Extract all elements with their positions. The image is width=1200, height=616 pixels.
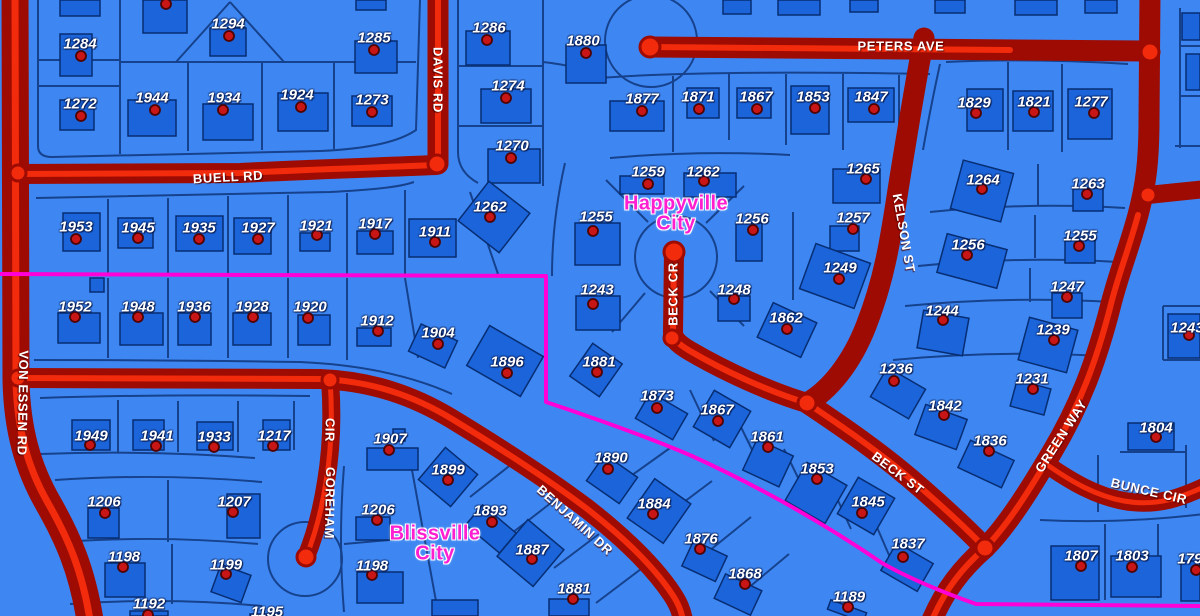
address-dot — [506, 153, 516, 163]
building — [1085, 0, 1117, 13]
address-dot — [433, 339, 443, 349]
address-dot — [367, 570, 377, 580]
address-dot — [373, 326, 383, 336]
building — [1186, 54, 1200, 90]
address-dot — [143, 610, 153, 616]
address-dot — [848, 224, 858, 234]
address-dot — [133, 312, 143, 322]
building — [234, 218, 271, 254]
address-dot — [637, 106, 647, 116]
address-dot — [372, 515, 382, 525]
building — [393, 429, 405, 441]
address-dot — [1074, 241, 1084, 251]
address-dot — [443, 475, 453, 485]
address-dot — [76, 111, 86, 121]
building — [60, 0, 100, 16]
address-dot — [984, 446, 994, 456]
map-canvas[interactable]: 1284127212941944193419241285127312861274… — [0, 0, 1200, 616]
address-dot — [643, 179, 653, 189]
address-dot — [482, 35, 492, 45]
address-dot — [224, 31, 234, 41]
address-dot — [581, 48, 591, 58]
building — [211, 564, 251, 602]
address-dot — [939, 410, 949, 420]
building — [610, 101, 664, 131]
address-dot — [501, 93, 511, 103]
address-dot — [1062, 292, 1072, 302]
address-dot — [190, 312, 200, 322]
address-dot — [695, 544, 705, 554]
address-dot — [843, 602, 853, 612]
address-dot — [218, 105, 228, 115]
address-dot — [384, 445, 394, 455]
address-dot — [161, 0, 171, 9]
address-dot — [592, 367, 602, 377]
building — [687, 88, 719, 118]
address-dot — [268, 441, 278, 451]
address-dot — [71, 234, 81, 244]
address-dot — [962, 250, 972, 260]
building — [620, 176, 664, 194]
address-dot — [133, 233, 143, 243]
address-dot — [370, 229, 380, 239]
address-dot — [1184, 330, 1194, 340]
address-dot — [652, 403, 662, 413]
building — [356, 0, 386, 10]
address-dot — [938, 315, 948, 325]
address-dot — [810, 103, 820, 113]
road-von-essen-rd — [15, 0, 90, 616]
address-dot — [699, 176, 709, 186]
address-dot — [502, 368, 512, 378]
address-dot — [1028, 384, 1038, 394]
address-dot — [752, 104, 762, 114]
address-dot — [248, 312, 258, 322]
building — [1182, 13, 1200, 40]
address-dot — [228, 507, 238, 517]
building — [467, 326, 544, 397]
building — [833, 169, 880, 203]
building — [935, 0, 965, 13]
building — [778, 0, 820, 15]
address-dot — [367, 107, 377, 117]
address-dot — [869, 104, 879, 114]
address-dot — [151, 441, 161, 451]
address-dot — [485, 212, 495, 222]
address-dot — [150, 105, 160, 115]
address-dot — [740, 579, 750, 589]
address-dot — [430, 237, 440, 247]
building — [627, 479, 691, 544]
building — [586, 454, 637, 503]
building — [90, 278, 104, 292]
building — [723, 0, 751, 14]
address-dot — [369, 45, 379, 55]
address-dot — [889, 376, 899, 386]
address-dot — [312, 230, 322, 240]
address-dot — [1029, 107, 1039, 117]
address-dot — [1082, 189, 1092, 199]
address-dot — [977, 184, 987, 194]
building — [684, 173, 736, 197]
address-dot — [70, 312, 80, 322]
address-dot — [588, 299, 598, 309]
address-dot — [694, 104, 704, 114]
building — [432, 600, 478, 616]
address-dot — [85, 440, 95, 450]
address-dot — [763, 442, 773, 452]
address-dot — [1191, 565, 1200, 575]
building — [850, 0, 878, 12]
building — [1051, 546, 1099, 600]
address-dot — [713, 416, 723, 426]
address-dot — [782, 324, 792, 334]
address-dot — [209, 442, 219, 452]
address-dot — [118, 562, 128, 572]
address-dot — [76, 51, 86, 61]
address-dot — [568, 594, 578, 604]
address-dot — [971, 108, 981, 118]
building — [937, 234, 1007, 289]
address-dot — [221, 569, 231, 579]
address-dot — [296, 102, 306, 112]
address-dot — [100, 508, 110, 518]
building — [1015, 0, 1057, 15]
address-dot — [253, 234, 263, 244]
address-dot — [487, 517, 497, 527]
address-dot — [857, 508, 867, 518]
map-graphics — [0, 0, 1200, 616]
address-dot — [1151, 432, 1161, 442]
address-dot — [603, 464, 613, 474]
address-dot — [729, 294, 739, 304]
address-dot — [1127, 562, 1137, 572]
address-dot — [748, 225, 758, 235]
address-dot — [1049, 335, 1059, 345]
address-dot — [1076, 561, 1086, 571]
building — [714, 574, 762, 615]
building — [870, 367, 925, 418]
address-dot — [194, 234, 204, 244]
building — [357, 572, 403, 603]
address-dot — [1089, 108, 1099, 118]
address-dot — [588, 226, 598, 236]
building — [1018, 317, 1078, 372]
address-dot — [648, 509, 658, 519]
buildings-layer — [58, 0, 1200, 616]
building — [63, 213, 100, 251]
address-dot — [527, 554, 537, 564]
building — [1111, 556, 1161, 597]
building — [635, 392, 687, 439]
address-dot — [834, 274, 844, 284]
address-dot — [898, 552, 908, 562]
address-dot — [303, 313, 313, 323]
address-dot — [812, 474, 822, 484]
address-dot — [861, 174, 871, 184]
